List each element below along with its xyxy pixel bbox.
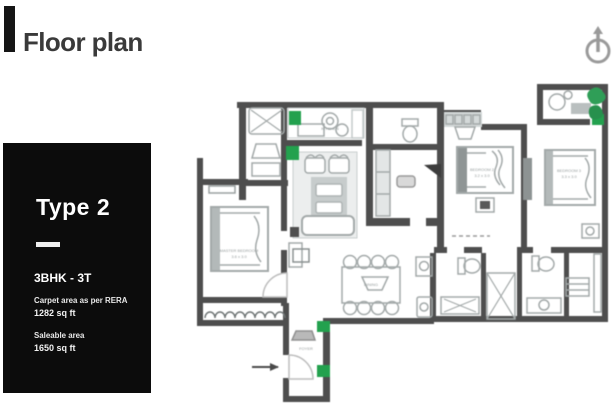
svg-text:3.6 x 3.0: 3.6 x 3.0 — [231, 254, 247, 259]
svg-text:3.3 x 3.0: 3.3 x 3.0 — [561, 174, 577, 179]
svg-text:KITCHEN: KITCHEN — [321, 126, 339, 131]
svg-text:3.2 x 3.0: 3.2 x 3.0 — [474, 173, 490, 178]
svg-text:MASTER BEDROOM: MASTER BEDROOM — [220, 248, 258, 253]
svg-text:FOYER: FOYER — [299, 346, 313, 351]
svg-text:DINING: DINING — [364, 282, 378, 287]
svg-text:BEDROOM 3: BEDROOM 3 — [557, 168, 582, 173]
svg-text:BEDROOM 2: BEDROOM 2 — [470, 167, 495, 172]
